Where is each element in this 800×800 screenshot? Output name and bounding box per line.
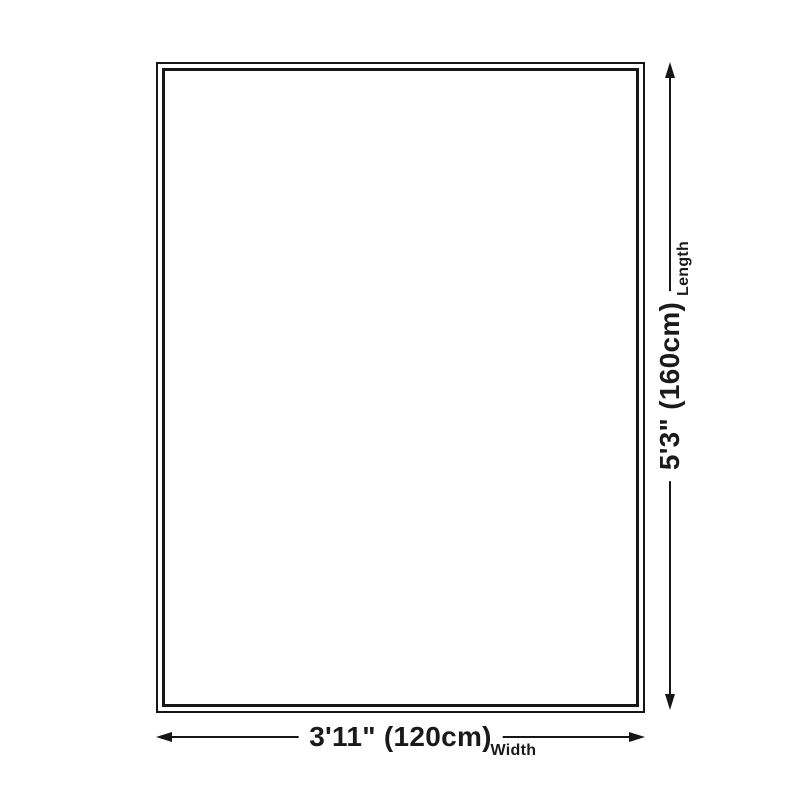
arrowhead-left-icon [156, 732, 172, 742]
rug-outline [156, 62, 645, 713]
width-value: 3'11" (120cm) [298, 721, 503, 753]
width-label: Width [491, 742, 537, 760]
rug-dimension-diagram: 3'11" (120cm) Width 5'3" (160cm) Length [0, 0, 800, 800]
arrowhead-up-icon [665, 62, 675, 78]
arrowhead-right-icon [629, 732, 645, 742]
length-value: 5'3" (160cm) [654, 291, 686, 481]
arrowhead-down-icon [665, 694, 675, 710]
length-label: Length [675, 241, 693, 296]
rug-inner-border [162, 68, 639, 707]
width-dimension-arrow: 3'11" (120cm) Width [156, 715, 645, 759]
length-dimension-arrow: 5'3" (160cm) Length [648, 62, 692, 710]
